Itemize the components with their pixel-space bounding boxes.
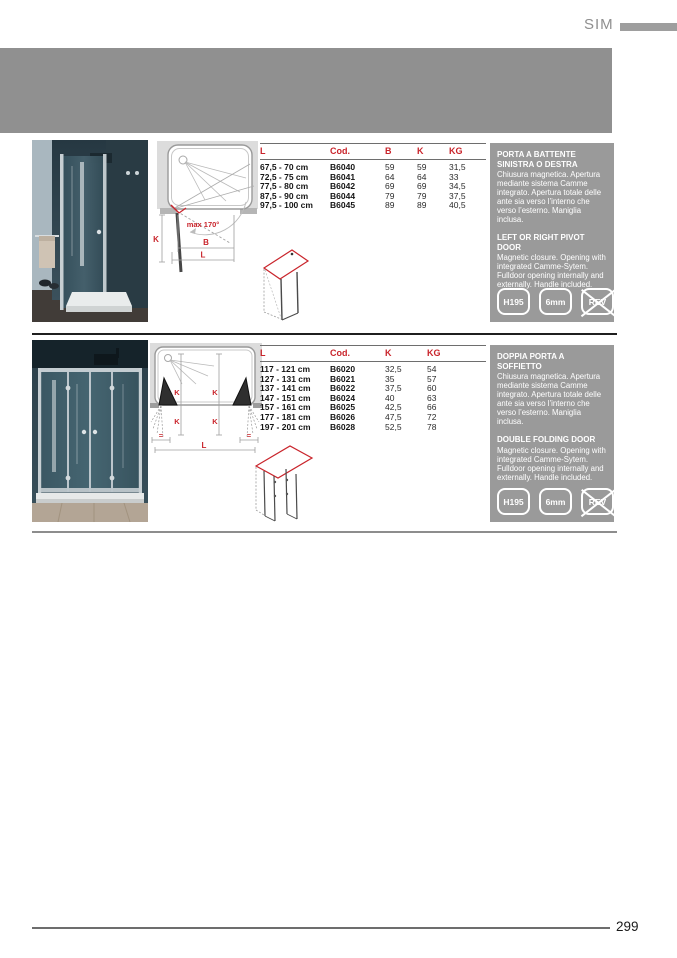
series-label: SIM [584, 16, 614, 33]
footer-rule [32, 927, 610, 929]
series-bar-decoration [620, 23, 677, 31]
col-header-k: K [417, 146, 449, 156]
product-description-en: Magnetic closure. Opening with integrate… [497, 253, 607, 289]
equal-offset-label: = [159, 431, 164, 440]
product-title-it: DOPPIA PORTA A SOFFIETTO [497, 352, 607, 371]
product-photo-pivot-door [32, 140, 148, 322]
product-description-it: Chiusura magnetica. Apertura mediante si… [497, 372, 607, 426]
tech-drawing-pivot-door: max 170° K B L [150, 140, 260, 288]
product-title-en: LEFT OR RIGHT PIVOT DOOR [497, 233, 607, 252]
size-table-folding-door: L Cod. K KG 117 - 121 cmB602032,554 127 … [260, 345, 486, 432]
col-header-kg: KG [449, 146, 486, 156]
col-header-b: B [385, 146, 417, 156]
col-header-l: L [260, 348, 330, 358]
col-header-l: L [260, 146, 330, 156]
dimension-l-label: L [201, 251, 206, 260]
iso-drawing-pivot-door [256, 242, 310, 326]
col-header-k: K [385, 348, 427, 358]
table-header-row: L Cod. K KG [260, 345, 486, 362]
not-reversible-badge: REV [581, 288, 614, 315]
col-header-cod: Cod. [330, 146, 385, 156]
catalog-page: SIM [0, 0, 677, 958]
product-photo-folding-door [32, 340, 148, 522]
col-header-cod: Cod. [330, 348, 385, 358]
table-row: 197 - 201 cmB602852,578 [260, 423, 486, 433]
table-header-row: L Cod. B K KG [260, 143, 486, 160]
dimension-k-label: K [153, 235, 159, 244]
tech-drawing-folding-door: K K K K = = L [148, 342, 264, 464]
description-box-pivot-door: PORTA A BATTENTE SINISTRA O DESTRA Chius… [490, 143, 614, 322]
product-description-it: Chiusura magnetica. Apertura mediante si… [497, 170, 607, 224]
iso-drawing-folding-door [250, 438, 316, 526]
header-band [0, 48, 612, 133]
badge-row: H195 6mm REV [497, 488, 614, 515]
product-title-it: PORTA A BATTENTE SINISTRA O DESTRA [497, 150, 607, 169]
dimension-b-label: B [203, 238, 209, 247]
dimension-k-label: K [174, 417, 180, 426]
not-reversible-badge: REV [581, 488, 614, 515]
dimension-k-label: K [212, 388, 218, 397]
col-header-kg: KG [427, 348, 472, 358]
table-row: 97,5 - 100 cmB6045898940,5 [260, 201, 486, 211]
dimension-k-label: K [174, 388, 180, 397]
product-description-en: Magnetic closure. Opening with integrate… [497, 446, 607, 482]
section-separator [32, 333, 617, 335]
product-title-en: DOUBLE FOLDING DOOR [497, 435, 607, 445]
dimension-k-label: K [212, 417, 218, 426]
height-badge: H195 [497, 488, 530, 515]
page-number: 299 [616, 919, 639, 934]
section-separator [32, 531, 617, 533]
size-table-pivot-door: L Cod. B K KG 67,5 - 70 cmB6040595931,5 … [260, 143, 486, 211]
badge-row: H195 6mm REV [497, 288, 614, 315]
glass-thickness-badge: 6mm [539, 488, 572, 515]
height-badge: H195 [497, 288, 530, 315]
description-box-folding-door: DOPPIA PORTA A SOFFIETTO Chiusura magnet… [490, 345, 614, 522]
glass-thickness-badge: 6mm [539, 288, 572, 315]
dimension-l-label: L [202, 441, 207, 450]
max-angle-label: max 170° [187, 220, 220, 229]
